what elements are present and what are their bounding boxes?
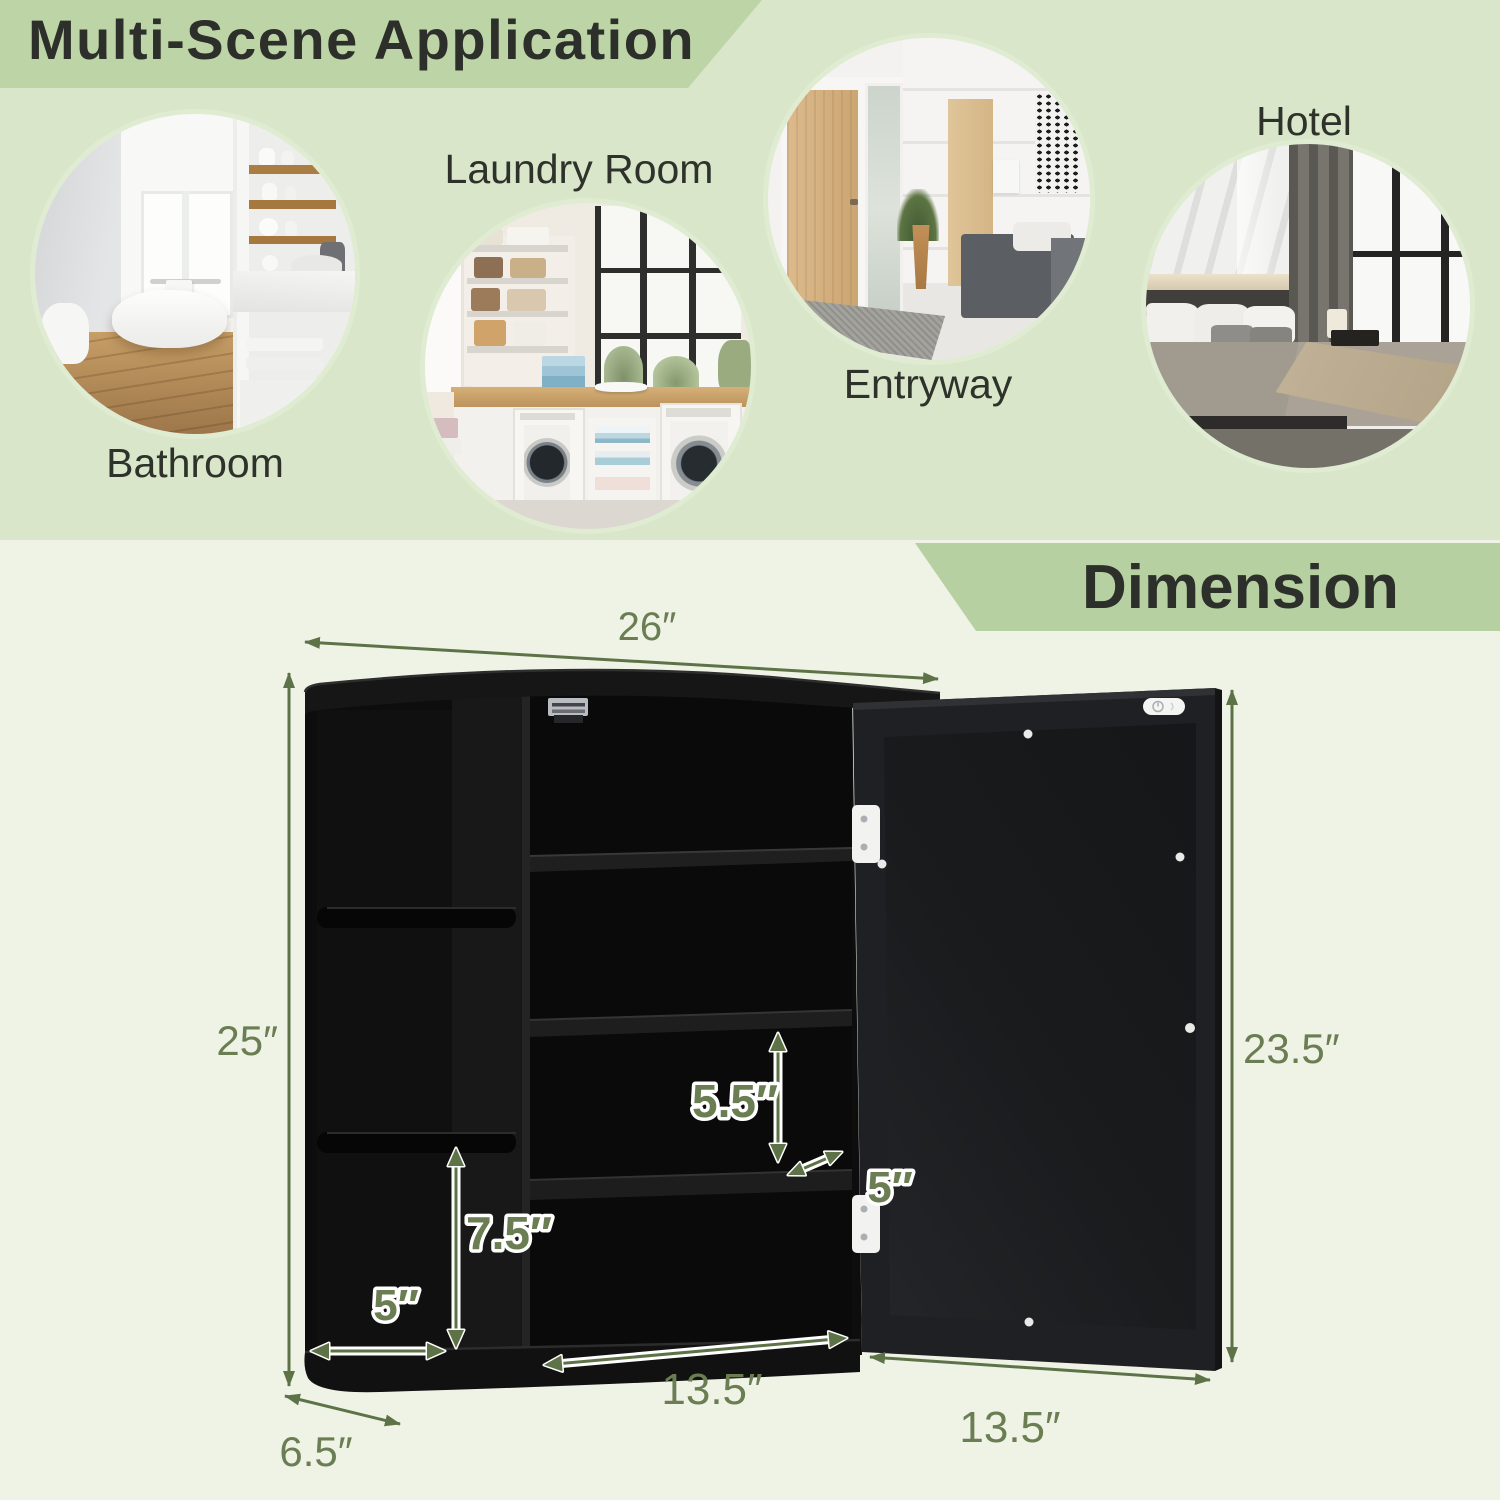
svg-text:26″: 26″ <box>618 605 677 649</box>
svg-text:5″: 5″ <box>373 1281 419 1330</box>
svg-text:7.5″: 7.5″ <box>466 1207 552 1259</box>
svg-text:6.5″: 6.5″ <box>279 1428 352 1475</box>
svg-text:5″: 5″ <box>867 1163 913 1212</box>
svg-text:13.5″: 13.5″ <box>959 1403 1060 1452</box>
svg-text:25″: 25″ <box>216 1017 278 1064</box>
svg-text:23.5″: 23.5″ <box>1243 1025 1340 1072</box>
svg-text:13.5″: 13.5″ <box>661 1365 762 1414</box>
svg-text:5.5″: 5.5″ <box>692 1075 778 1127</box>
